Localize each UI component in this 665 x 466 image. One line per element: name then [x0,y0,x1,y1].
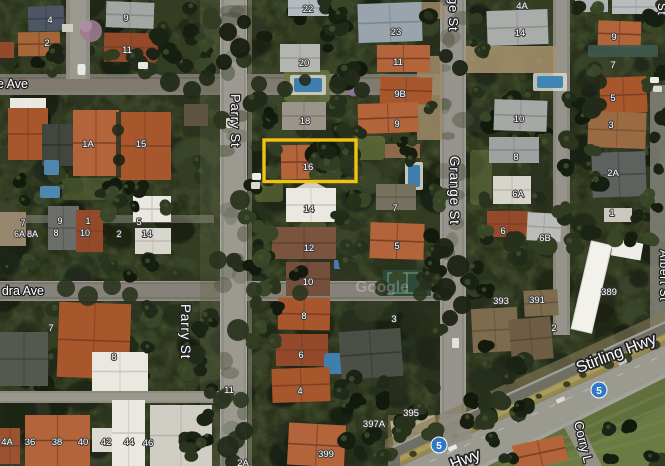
svg-text:15: 15 [136,139,147,150]
svg-text:2A: 2A [607,168,619,179]
svg-text:44: 44 [124,437,135,448]
svg-text:5: 5 [136,217,141,227]
svg-text:14: 14 [304,204,315,215]
svg-text:9: 9 [57,216,62,226]
svg-text:4: 4 [47,15,52,26]
svg-text:5: 5 [436,441,442,452]
svg-text:6: 6 [298,350,303,361]
svg-text:1A: 1A [82,139,94,150]
svg-text:7: 7 [20,218,25,228]
svg-text:dra Ave: dra Ave [2,284,44,298]
svg-text:3: 3 [391,314,396,325]
svg-text:11: 11 [393,57,403,68]
svg-text:38: 38 [52,437,63,448]
svg-text:ge St: ge St [446,0,461,31]
svg-text:8: 8 [513,152,518,163]
svg-text:9: 9 [394,119,399,130]
svg-text:395: 395 [403,408,419,419]
svg-text:18: 18 [300,116,311,127]
svg-text:42: 42 [101,437,112,448]
svg-text:5: 5 [596,386,602,397]
svg-text:Grange St: Grange St [447,156,462,225]
svg-text:6A 8A: 6A 8A [14,229,38,239]
svg-text:9: 9 [123,13,128,24]
svg-text:e Ave: e Ave [0,77,28,91]
svg-text:7: 7 [48,323,53,334]
svg-text:3: 3 [608,120,613,131]
svg-text:2: 2 [44,38,49,49]
svg-text:23: 23 [391,27,402,38]
svg-text:4A: 4A [1,437,13,448]
svg-text:5: 5 [610,93,615,104]
svg-text:1: 1 [85,216,90,226]
svg-text:36: 36 [25,437,36,448]
svg-text:22: 22 [303,4,314,15]
svg-text:46: 46 [143,438,154,449]
svg-text:16: 16 [303,162,314,173]
svg-text:2A: 2A [237,458,249,466]
svg-text:6B: 6B [539,233,551,244]
svg-text:7: 7 [610,60,615,71]
svg-text:Google: Google [355,279,409,296]
svg-text:9B: 9B [394,89,406,100]
svg-text:40: 40 [78,437,89,448]
svg-text:11: 11 [224,385,234,396]
svg-text:10: 10 [514,114,525,125]
svg-text:12: 12 [304,243,315,254]
svg-text:7: 7 [392,203,397,214]
svg-text:6A: 6A [512,189,524,200]
svg-text:1: 1 [609,208,614,219]
svg-text:20: 20 [299,58,310,69]
svg-text:4A: 4A [516,1,528,12]
svg-text:8: 8 [53,228,58,238]
svg-text:5: 5 [394,241,399,252]
svg-text:389: 389 [601,287,617,298]
svg-text:Albert St: Albert St [657,250,665,301]
svg-text:393: 393 [493,296,509,307]
svg-text:399: 399 [318,449,334,460]
svg-text:11: 11 [122,45,132,56]
svg-text:14: 14 [515,28,526,39]
svg-text:8: 8 [111,352,116,363]
svg-text:8: 8 [301,311,306,322]
svg-text:2: 2 [551,323,556,334]
svg-text:14: 14 [142,229,152,239]
svg-text:4: 4 [297,386,302,397]
svg-text:397A: 397A [363,419,386,430]
svg-text:2: 2 [116,229,121,239]
svg-text:St: St [655,3,665,15]
svg-text:391: 391 [529,295,545,306]
svg-text:9: 9 [611,32,616,43]
svg-text:10: 10 [303,277,314,288]
svg-text:6: 6 [500,226,505,237]
svg-text:Parry St: Parry St [178,304,193,359]
svg-text:10: 10 [80,228,90,238]
svg-text:Parry St: Parry St [228,94,243,147]
